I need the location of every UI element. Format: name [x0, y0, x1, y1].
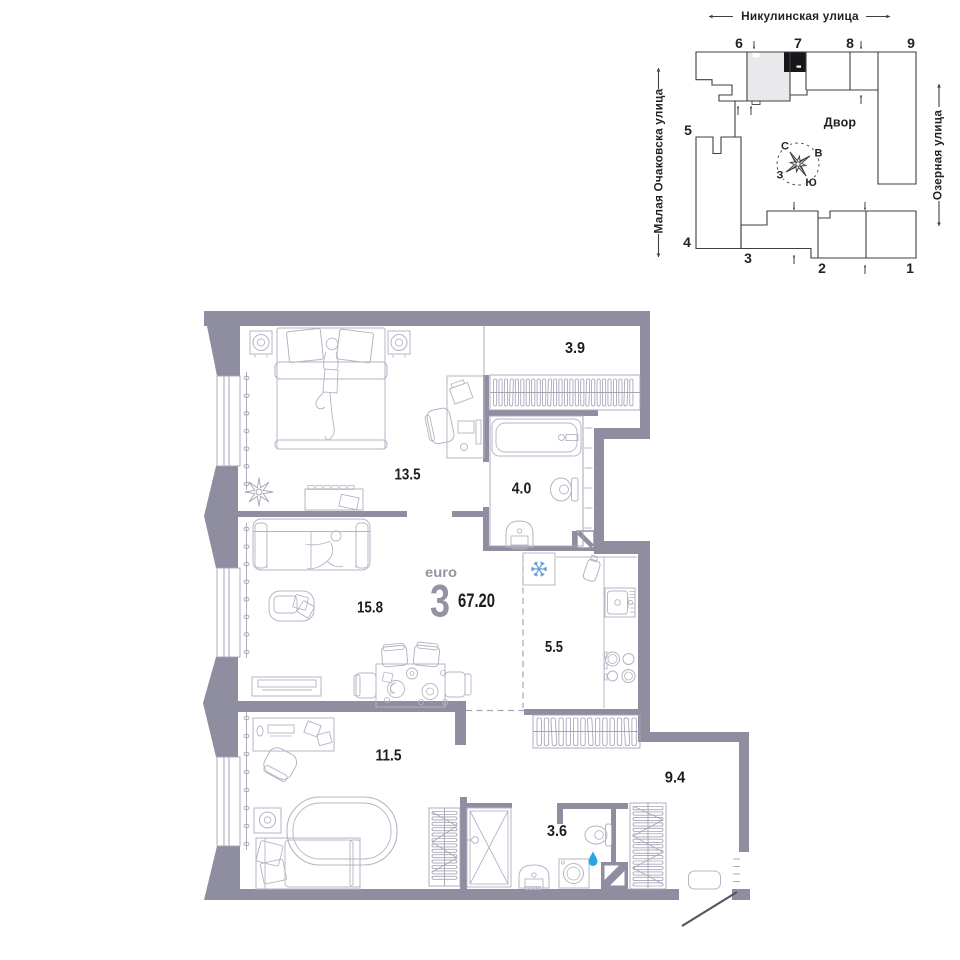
svg-text:11.5: 11.5 — [376, 748, 402, 765]
svg-text:Озерная улица: Озерная улица — [931, 110, 945, 200]
svg-text:7: 7 — [794, 35, 802, 51]
svg-text:13.5: 13.5 — [395, 467, 421, 484]
svg-text:1: 1 — [906, 260, 914, 276]
svg-text:67.20: 67.20 — [458, 591, 495, 612]
svg-text:4: 4 — [683, 234, 691, 250]
svg-text:8: 8 — [846, 35, 854, 51]
svg-text:3: 3 — [744, 250, 752, 266]
svg-text:Ю: Ю — [805, 177, 816, 189]
svg-text:5.5: 5.5 — [545, 639, 563, 656]
svg-text:5: 5 — [684, 122, 692, 138]
svg-text:3.6: 3.6 — [547, 823, 567, 840]
svg-text:15.8: 15.8 — [357, 600, 383, 617]
svg-text:3.9: 3.9 — [565, 340, 585, 357]
svg-text:9: 9 — [907, 35, 915, 51]
svg-text:З: З — [777, 170, 784, 182]
svg-text:Двор: Двор — [824, 116, 857, 130]
svg-text:9.4: 9.4 — [665, 770, 686, 787]
svg-text:Малая Очаковска улица: Малая Очаковска улица — [652, 88, 666, 233]
svg-text:Никулинская улица: Никулинская улица — [741, 9, 859, 23]
svg-text:4.0: 4.0 — [512, 481, 532, 498]
svg-text:6: 6 — [735, 35, 743, 51]
svg-text:3: 3 — [430, 576, 450, 627]
svg-text:С: С — [781, 141, 789, 153]
svg-text:В: В — [815, 148, 823, 160]
svg-text:2: 2 — [818, 260, 826, 276]
